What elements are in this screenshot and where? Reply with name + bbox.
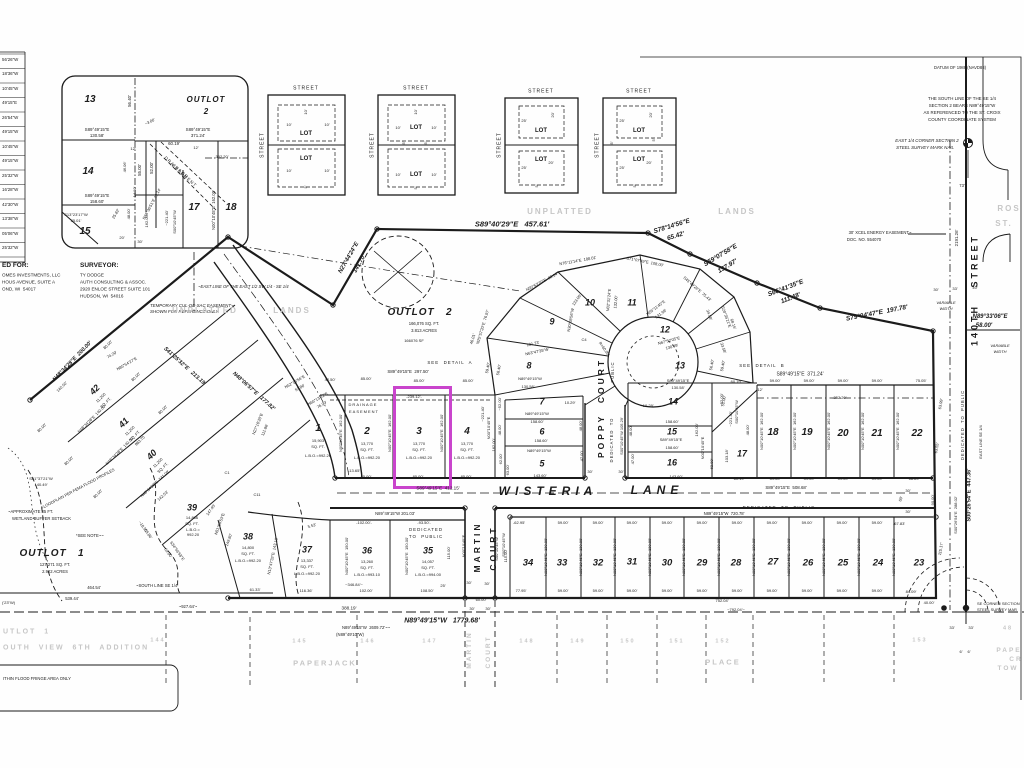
map-label: COURT xyxy=(486,635,493,668)
map-label: 59.40' xyxy=(485,362,491,373)
map-label: THE SOUTH LINE OF THE SE 1/4 xyxy=(928,97,996,101)
map-label: 59.00' xyxy=(804,379,815,383)
map-label: 76.99' xyxy=(316,401,327,410)
map-label: 130.99' xyxy=(665,343,679,350)
map-label: S00°10'45"W 105.29' xyxy=(620,417,624,455)
map-label: SEE DETAIL A xyxy=(427,361,472,365)
map-label: 47.00' xyxy=(580,451,584,462)
map-label: ~221.40' xyxy=(729,411,733,426)
map-label: LOT xyxy=(633,157,645,163)
map-label: 371.24' xyxy=(191,134,205,138)
map-label: 127,271 SQ. FT. xyxy=(40,563,71,567)
map-label: 80.00' xyxy=(64,456,74,466)
map-label: N00°10'45"E 150.00' xyxy=(405,537,409,575)
map-label: 388.19' xyxy=(342,607,357,612)
map-label: 60.19' xyxy=(168,142,180,146)
lot-5: 5 xyxy=(539,460,544,469)
map-label: ~221.40' xyxy=(165,210,169,225)
map-label: LOT xyxy=(300,131,312,137)
map-label: 30' xyxy=(466,581,471,585)
street-wisteria: WISTERIA xyxy=(499,485,598,497)
map-label: 2920 ENLOE STREET SUITE 101 xyxy=(80,288,150,293)
map-label: 58.00' xyxy=(976,323,992,329)
map-label: 56.40' xyxy=(128,95,132,107)
map-label: 166076 SF xyxy=(404,339,424,343)
map-label: ED FOR: xyxy=(2,263,29,270)
map-label: 42.50' xyxy=(325,378,336,382)
map-label: N89°49'15"W 2609.72'~~ xyxy=(342,626,390,630)
map-label: 5' xyxy=(633,185,637,188)
map-label: SE CORNER SECTION xyxy=(977,602,1020,606)
map-label: N25°57'20"E 76.97' xyxy=(476,309,490,344)
map-label: 140.00' xyxy=(56,381,68,393)
map-label: 30' xyxy=(469,607,474,611)
map-label: 130.58' xyxy=(522,385,535,389)
lot-6: 6 xyxy=(539,428,544,437)
map-label: 42'30"W xyxy=(2,203,18,207)
surveyor-heading: SURVEYOR: xyxy=(80,263,119,270)
map-label: 464.54' xyxy=(87,586,101,590)
map-label: -13.65' xyxy=(348,469,360,473)
lot-8: 8 xyxy=(526,362,531,371)
map-label: S89°49'15"E xyxy=(85,128,110,132)
map-label: 59.00' xyxy=(697,521,708,525)
surveyor-name: TY DODGE xyxy=(80,274,104,279)
map-label: HUDSON, WI 54016 xyxy=(80,295,123,300)
map-label: 5' xyxy=(304,186,308,189)
map-label: 130.58' xyxy=(672,386,685,390)
map-label: 69.90' xyxy=(163,547,172,558)
map-label: 48.00' xyxy=(579,421,583,432)
map-label: 48.00' xyxy=(629,426,633,437)
lot-39: 39 xyxy=(187,504,197,513)
lot-21: 21 xyxy=(871,429,882,439)
map-label: 102.00' xyxy=(360,589,373,593)
map-label: 59.00' xyxy=(627,521,638,525)
map-label: 20' xyxy=(548,161,553,165)
map-label: N00°10'45"E 162.00' xyxy=(339,414,343,452)
map-label: 59.00' xyxy=(838,379,849,383)
lot-25: 25 xyxy=(838,558,849,568)
map-label: 149 xyxy=(570,639,585,645)
map-label: ~APPROXIMATE 35 FT. xyxy=(8,510,53,514)
map-label: MARTIN xyxy=(467,631,474,668)
map-label: ITHIN FLOOD FRINGE AREA ONLY xyxy=(3,677,71,681)
map-label: SQ. FT. xyxy=(460,448,474,452)
street-lane: LANE xyxy=(631,484,684,496)
map-label: 12' xyxy=(757,388,762,392)
map-label: 2191.26' xyxy=(955,230,959,247)
map-label: HOUS AVENUE, SUITE A xyxy=(2,281,55,286)
map-label: 20' xyxy=(119,236,124,240)
map-label: ~346.84'~ xyxy=(345,583,363,587)
map-label: 52.00' xyxy=(150,162,154,174)
map-label: N50°53'20"E 83.14' xyxy=(525,272,558,292)
map-label: SQ. FT. xyxy=(360,566,374,570)
map-label: 13,770 xyxy=(461,442,473,446)
map-label: S89°49'15"E xyxy=(660,438,682,442)
map-label: 80.00' xyxy=(103,340,113,350)
map-label: VARIABLE xyxy=(936,301,955,305)
map-label: 59.00' xyxy=(872,477,883,481)
map-label: L.B.O.=994.00 xyxy=(415,573,441,577)
map-label: 85.00' xyxy=(463,379,474,383)
map-label: EASEMENT xyxy=(349,410,379,414)
map-label: SQ. FT. xyxy=(360,448,374,452)
map-label: 30' xyxy=(905,489,910,493)
map-label: 131.73' xyxy=(526,341,540,348)
map-label: 5.53' xyxy=(307,523,316,529)
map-label: C11 xyxy=(253,493,260,497)
map-label: 14,800 xyxy=(242,546,254,550)
map-label: -67.83' xyxy=(893,522,905,526)
map-label: 59.00' xyxy=(558,521,569,525)
map-label: 59.00' xyxy=(662,521,673,525)
map-label: STREET xyxy=(626,90,652,95)
map-label: 10' xyxy=(324,169,329,173)
map-label: DRAINAGE xyxy=(349,403,378,407)
map-label: 80.00' xyxy=(37,423,47,433)
lot-1: 1 xyxy=(315,424,321,434)
map-label: 80.00' xyxy=(158,405,168,415)
map-label: 59.00' xyxy=(697,589,708,593)
map-label: S45°49'26"E 75.43' xyxy=(682,276,711,302)
map-label: 142.53' xyxy=(157,490,169,502)
map-label: S89°40'29"E 457.61' xyxy=(475,220,549,228)
map-label: 13'38"W xyxy=(2,217,18,221)
street-place: PLACE xyxy=(705,658,740,666)
map-label: UNPLATTED xyxy=(172,307,238,315)
map-label: 162.00' xyxy=(492,439,496,452)
map-label: S41°25'32"E 213.19' xyxy=(162,347,206,388)
lot-30: 30 xyxy=(662,558,673,568)
lot-18: 18 xyxy=(767,428,778,438)
map-label: 68.89' xyxy=(909,477,920,481)
map-label: 62.00' xyxy=(710,459,714,470)
map-label: 116.36' xyxy=(300,589,313,593)
map-label: 59.00' xyxy=(732,589,743,593)
lot-12: 12 xyxy=(660,326,670,335)
lot-36: 36 xyxy=(362,547,372,556)
map-label: N48°06'57"E 177.82' xyxy=(231,372,275,413)
map-label: 132.00' xyxy=(613,295,618,308)
map-label: 352.20' xyxy=(216,155,229,159)
lot-4: 4 xyxy=(464,427,470,437)
map-label: N00°10'45"E 150.00' xyxy=(345,537,349,575)
map-label: 85.00' xyxy=(361,377,372,381)
map-label: N13°47'32"E 143.16' xyxy=(267,537,279,575)
map-label: 30' xyxy=(137,240,142,244)
map-label: ~221.40' xyxy=(481,406,485,421)
map-label: 61.33' xyxy=(250,588,261,592)
map-label: 59.00' xyxy=(838,477,849,481)
outlot-2: OUTLOT 2 xyxy=(388,308,453,318)
map-label: 25' xyxy=(619,166,624,170)
map-label: N51°54'53"E xyxy=(214,513,226,536)
map-label: 25' xyxy=(521,119,526,123)
map-label: 58.40' xyxy=(496,364,502,375)
map-label: 10'45"W xyxy=(2,87,18,91)
map-label: SQ. FT. xyxy=(311,445,325,449)
lot-34: 34 xyxy=(523,558,534,568)
map-label: N00°10'45"E 162.00' xyxy=(827,412,831,450)
map-label: COUNTY COORDINATE SYSTEM xyxy=(928,118,996,122)
map-label: N89°49'15"W xyxy=(518,377,542,381)
map-label: 40.00' xyxy=(924,601,935,605)
map-label: ~927.64'~ xyxy=(179,605,198,609)
map-label: N00°10'45"E 130.00' xyxy=(822,538,826,576)
map-label: 34.58' xyxy=(705,309,712,320)
map-label: N89°49'15"W xyxy=(525,412,549,416)
map-label: OND, WI 54017 xyxy=(2,288,36,293)
map-label: S20°35'21"E xyxy=(720,306,731,328)
map-label: TOW xyxy=(997,666,1018,673)
map-label: N00°10'45"E 162.00' xyxy=(896,412,900,450)
map-label: 53.86' xyxy=(294,384,305,393)
map-label: 59.00' xyxy=(804,477,815,481)
map-label: 5' xyxy=(402,142,406,145)
map-label: 10' xyxy=(431,126,436,130)
lot-18-inset: 18 xyxy=(225,203,236,213)
map-label: N00°10'45"E 162.00' xyxy=(212,190,216,230)
map-label: S00°26'54"E 447.36' xyxy=(967,469,973,522)
map-label: 60.19' xyxy=(731,380,742,384)
map-label: 10' xyxy=(286,123,291,127)
map-label: 2.922 ACRES xyxy=(42,570,68,574)
map-label: 59.00' xyxy=(872,521,883,525)
map-label: WETLAND BUFFER SETBACK xyxy=(12,517,71,521)
map-label: 62.00' xyxy=(499,454,503,465)
map-label: 59.00' xyxy=(837,521,848,525)
lot-2: 2 xyxy=(364,427,370,437)
map-label: S34°56'58"E xyxy=(169,541,185,562)
street-court: COURT xyxy=(489,525,498,570)
map-label: S00°10'45"W xyxy=(173,210,177,234)
lot-24: 24 xyxy=(873,558,884,568)
map-label: 153 xyxy=(912,638,927,644)
map-label: 2 xyxy=(204,108,208,116)
map-label: -352.20'- xyxy=(832,396,848,400)
map-label: 145 xyxy=(292,639,307,645)
map-label: L.B.O.=992.20 xyxy=(454,456,480,460)
lot-31: 31 xyxy=(627,557,638,567)
street-martin: MARTIN xyxy=(473,521,482,572)
map-label: 14,866 xyxy=(186,516,198,520)
detail-street-label: STREET xyxy=(293,87,319,92)
map-label: 158.60' xyxy=(531,420,544,424)
map-label: 5' xyxy=(424,142,428,145)
map-label: N89°49'15"W xyxy=(527,449,551,453)
map-label: 10.29' xyxy=(565,401,576,405)
lot-15: 15 xyxy=(667,428,677,437)
lot-14-inset: 14 xyxy=(82,167,93,177)
map-label: 63.99' xyxy=(938,398,944,409)
map-label: L.B.O.=992.20 xyxy=(406,456,432,460)
map-label: 20' xyxy=(551,112,555,117)
map-label: 63.55' xyxy=(934,442,940,453)
map-label: N48°34'28"E 140.00' xyxy=(105,436,135,466)
map-label: 149.80' xyxy=(225,533,233,547)
map-label: UNPLATTED xyxy=(527,208,593,216)
map-label: S89°49'15"E xyxy=(85,194,110,198)
lot-20: 20 xyxy=(837,429,848,439)
map-label: LOT xyxy=(535,157,547,163)
map-label: S89°49'15"E 371.24' xyxy=(776,373,823,378)
lot-17: 17 xyxy=(737,450,747,459)
map-label: 25' xyxy=(521,166,526,170)
map-label: 6' xyxy=(968,650,971,654)
map-label: S89°49'15"E xyxy=(186,128,211,132)
map-label: 84.09' xyxy=(906,590,917,594)
map-label: 33.58' xyxy=(719,342,726,353)
map-label: AS REFERENCED TO THE ST. CROIX xyxy=(923,111,1000,115)
map-label: LOT xyxy=(410,172,422,178)
map-label: N89°49'15"W 720.78' xyxy=(704,512,745,516)
map-label: 85.00' xyxy=(461,475,472,479)
street-poppy-court: POPPY COURT xyxy=(597,358,606,458)
map-label: L.B.O.=992.20 xyxy=(305,454,331,458)
map-label: TO PUBLIC xyxy=(409,535,443,539)
map-label: STREET xyxy=(261,132,266,158)
map-label: N00°10'45"E 130.00' xyxy=(752,538,756,576)
map-label: 74.20' xyxy=(106,351,117,360)
lot-35: 35 xyxy=(423,547,433,556)
map-label: ~EAST LINE OF THE EAST 1/2 SW 1/4 - SE 1… xyxy=(198,285,289,289)
map-label: 80.00' xyxy=(93,489,103,499)
map-label: 10' xyxy=(414,109,418,114)
map-label: PAPE xyxy=(996,648,1021,655)
map-label: 85.00' xyxy=(414,379,425,383)
lot-27: 27 xyxy=(768,557,779,567)
map-label: WIDTH xyxy=(993,350,1006,354)
map-label: 103.18' xyxy=(725,450,729,463)
plat-map-sheet: 56'26"W18'36"W10'45"W49'15"E26'54"W49'15… xyxy=(0,0,1024,768)
map-label: 15,903 xyxy=(312,439,324,443)
map-label: N00°10'45"E xyxy=(462,535,466,558)
map-label: 10' xyxy=(395,126,400,130)
map-label: DATUM OF 1988 (NAVD88) xyxy=(934,66,986,70)
map-label: 26'54"W xyxy=(2,116,18,120)
map-label: 143.60' xyxy=(670,475,683,479)
map-label: 10' xyxy=(395,173,400,177)
map-label: 158.60' xyxy=(666,420,679,424)
map-label: 35.01' xyxy=(71,219,82,223)
map-label: 55.00' xyxy=(138,164,142,176)
map-label: 30' xyxy=(933,288,938,292)
map-label: 59.00' xyxy=(662,589,673,593)
map-label: 47.00' xyxy=(631,454,635,465)
map-label: 162.00' xyxy=(695,424,699,437)
map-label: N00°10'45"E xyxy=(487,417,491,440)
map-label: S89°49'15"E 508.68' xyxy=(765,486,806,490)
map-label: 65.42' xyxy=(667,231,686,242)
map-label: 18'36"W xyxy=(2,72,18,76)
map-label: 30' xyxy=(587,470,592,474)
map-label: 10' xyxy=(304,109,308,114)
map-label: 60.00' xyxy=(476,598,487,602)
lot-33: 33 xyxy=(557,558,568,568)
map-label: 108.50' xyxy=(421,589,434,593)
map-label: ~3.00' xyxy=(144,118,156,126)
map-label: S79°04'47"E 197.78' xyxy=(846,305,909,323)
map-label: 59.00' xyxy=(837,589,848,593)
map-label: LOT xyxy=(300,156,312,162)
map-label: 20' xyxy=(649,112,653,117)
map-label: 49'15"E xyxy=(2,101,17,105)
map-label: *SEE NOTE~~ xyxy=(76,534,104,538)
map-label: 3.813 ACRES xyxy=(411,329,437,333)
map-label: SQ. FT. xyxy=(185,522,199,526)
map-label: L.B.O.=993.10 xyxy=(354,573,380,577)
map-label: N89°33'06"E xyxy=(972,314,1007,320)
map-label: 16'28"W xyxy=(2,188,18,192)
map-label: S00°10'45"W xyxy=(735,400,739,424)
map-label: 59.00' xyxy=(593,589,604,593)
map-label: 59.00' xyxy=(802,589,813,593)
map-label: DEDICATED TO PUBLIC xyxy=(961,390,965,460)
map-label: 152 xyxy=(715,639,730,645)
lot-15-inset: 15 xyxy=(79,227,90,237)
lot-9: 9 xyxy=(549,318,554,327)
map-label: 48.00' xyxy=(127,209,131,220)
map-label: 85.00' xyxy=(413,475,424,479)
map-label: STEEL SURVEY MAR xyxy=(977,608,1017,612)
map-label: 133.00' xyxy=(572,294,583,307)
map-label: N89°49'15"W 1779.68' xyxy=(404,618,480,625)
lot-23: 23 xyxy=(914,558,925,568)
map-label: 56'26"W xyxy=(2,58,18,62)
map-label: 59.00' xyxy=(767,521,778,525)
lot-14: 14 xyxy=(668,398,678,407)
map-label: 05'06"W xyxy=(2,232,18,236)
map-label: LOT xyxy=(535,128,547,134)
map-label: 30' xyxy=(905,510,910,514)
map-label: -62.95' xyxy=(513,521,525,525)
map-label: 146 xyxy=(360,639,375,645)
map-label: ~792.04'~ xyxy=(727,608,745,612)
street-paperjack: PAPERJACK xyxy=(293,659,357,667)
map-label: 147.45' xyxy=(206,504,217,517)
map-label: LOT xyxy=(633,128,645,134)
lot-22: 22 xyxy=(911,429,922,439)
map-label: 131.98' xyxy=(655,308,668,319)
map-label: OUTH VIEW 6TH ADDITION xyxy=(3,645,149,652)
map-label: 25'32"W xyxy=(2,174,18,178)
lot-11: 11 xyxy=(627,299,636,308)
map-label: 30' xyxy=(485,607,490,611)
map-label: N00°10'45"E 162.00' xyxy=(388,414,392,452)
map-label: 5' xyxy=(535,185,539,188)
map-label: 59.00' xyxy=(767,589,778,593)
map-label: 53.86' xyxy=(143,528,152,539)
map-label: N00°10'45"E 130.00' xyxy=(613,538,617,576)
map-label: 59.00' xyxy=(802,521,813,525)
map-label: 6' xyxy=(960,650,963,654)
map-label: 46.06' xyxy=(123,162,127,173)
map-label: 158.60' xyxy=(90,200,104,204)
map-label: -93.50'- xyxy=(417,521,430,525)
map-label: -102.00'- xyxy=(356,521,372,525)
map-label: N85°54'27"E xyxy=(116,357,138,372)
map-label: 144 xyxy=(150,638,165,644)
map-label: L.B.O.=992.20 xyxy=(235,559,261,563)
map-label: L.B.O.=992.20 xyxy=(354,456,380,460)
lot-7: 7 xyxy=(539,398,544,407)
map-label: 137.97' xyxy=(717,259,739,276)
map-label: SQ. FT. xyxy=(300,565,314,569)
map-label: N00°10'45"E 130.00' xyxy=(544,538,548,576)
map-label: N00°10'45"E 130.00' xyxy=(682,538,686,576)
